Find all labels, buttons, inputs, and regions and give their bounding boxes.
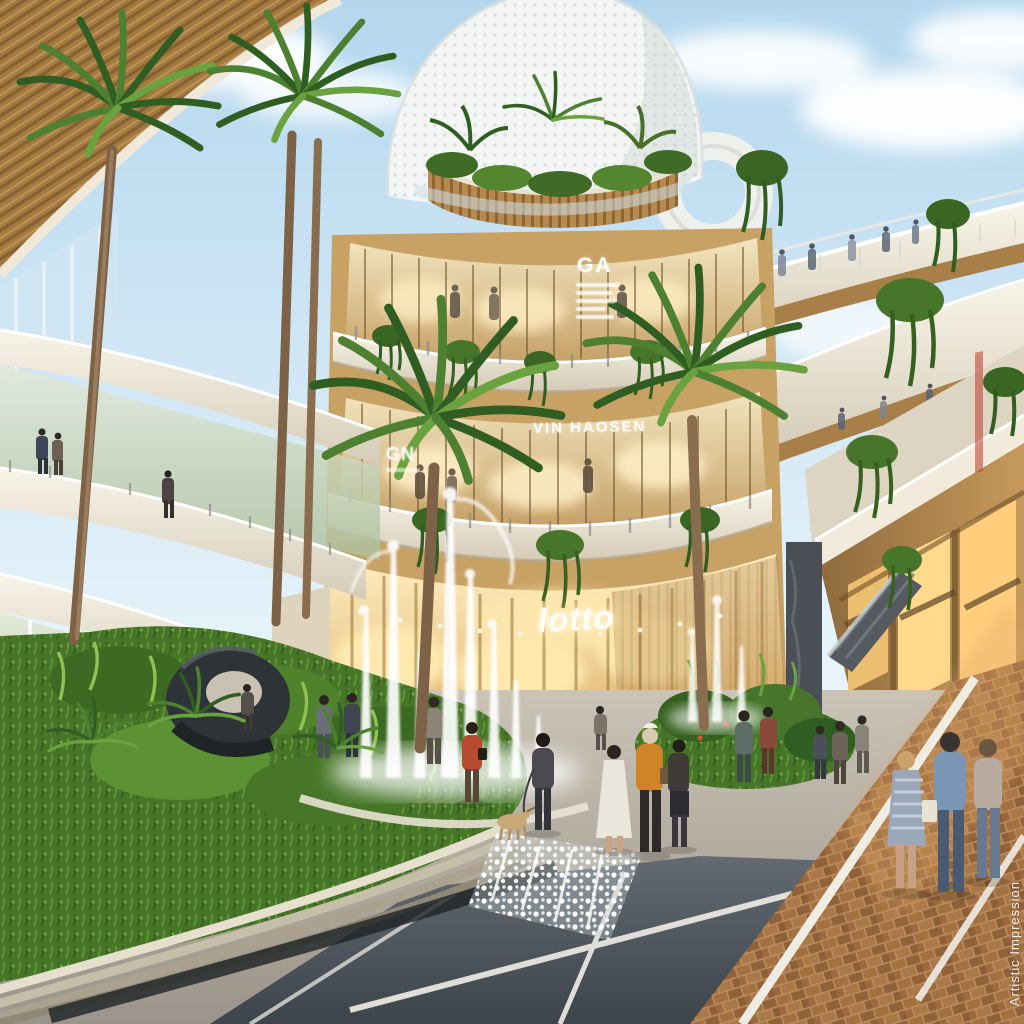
watermark-artistic-impression: Artistic Impression — [1007, 881, 1022, 1006]
store-sign-gn-smallprint — [386, 468, 420, 472]
smallprint-line — [386, 468, 420, 472]
smallprint-line — [576, 315, 614, 319]
store-sign-gn: GN — [386, 444, 415, 465]
rendering-canvas: GA GN VIN HAOSEN lotto Artistic Impressi… — [0, 0, 1024, 1024]
store-sign-ga: GA — [577, 254, 613, 278]
shopping-bag — [922, 800, 937, 822]
store-sign-vin-haosen: VIN HAOSEN — [533, 418, 647, 437]
smallprint-line — [576, 283, 620, 287]
store-sign-lotto: lotto — [537, 598, 615, 640]
smallprint-line — [576, 307, 606, 311]
scene-art — [0, 0, 1024, 1024]
smallprint-line — [576, 291, 612, 295]
red-display — [975, 351, 983, 473]
smallprint-line — [576, 299, 616, 303]
store-sign-ga-smallprint — [576, 283, 620, 319]
